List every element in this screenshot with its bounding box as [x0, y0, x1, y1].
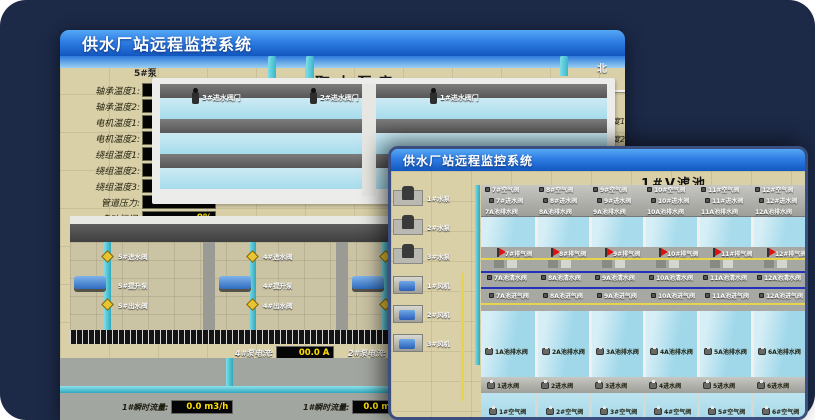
clean-water-valve-label: 9A池清水阀: [602, 273, 635, 282]
drain-valve-label: 9A池排水阀: [593, 207, 626, 216]
blower-fan-icon: [399, 310, 415, 320]
valve-icon: [595, 382, 603, 389]
filter-pool-cell: [751, 217, 805, 247]
alarm-flag-icon: [551, 248, 553, 257]
air-valve[interactable]: 3#空气阀: [600, 407, 637, 416]
instrument-box-icon[interactable]: [507, 260, 517, 268]
drain-valve[interactable]: 6A池排水阀: [758, 347, 801, 356]
clean-water-valve-label: 11A池清水阀: [710, 273, 747, 282]
panel-field-label: 电机温度1:: [66, 116, 140, 129]
valve-icon: [489, 198, 494, 203]
inlet-valve[interactable]: 3#进水阀门: [192, 92, 241, 104]
inlet-valve-label: 1#进水阀门: [440, 93, 479, 103]
inlet-valve-label: 3进水阀: [605, 381, 627, 390]
fan-shed: [393, 334, 423, 352]
air-valve[interactable]: 5#空气阀: [708, 407, 745, 416]
air-valve-label: 11#空气阀: [708, 185, 739, 194]
instrument-box-icon[interactable]: [723, 260, 733, 268]
valve-icon: [701, 187, 706, 192]
pump-bay: 4#进水阀 4#提升泵 4#出水阀: [203, 242, 336, 330]
bay-number: [203, 224, 336, 242]
inlet-valve-label: 7#进水阀: [496, 196, 523, 205]
water-pump-label: 2#水泵: [427, 222, 450, 232]
vent-valve[interactable]: 10#排气阀: [667, 249, 698, 258]
valve-icon: [654, 408, 662, 415]
channel-cell: 2#空气阀: [535, 393, 589, 417]
air-inlet-valve-label: 7A池进气阀: [496, 291, 529, 300]
inlet-valve[interactable]: 4进水阀: [649, 381, 681, 390]
pump2-current-label: 2#泵电流:: [348, 348, 386, 359]
clean-water-valve[interactable]: 10A池清水阀: [649, 273, 693, 282]
water-pump-label: 3#水泵: [427, 251, 450, 261]
inlet-valve[interactable]: 6进水阀: [757, 381, 789, 390]
air-inlet-valve[interactable]: 7A池进气阀: [489, 291, 529, 300]
walkway-cell: 8#排气阀 8A池清水阀 8A池进气阀: [535, 247, 589, 311]
inlet-valve[interactable]: 1进水阀: [487, 381, 519, 390]
panel-field-label: 管道压力:: [66, 196, 140, 209]
filter-pool-cell: [643, 217, 697, 247]
vent-valve-label: 10#排气阀: [667, 249, 698, 258]
filter-pool-cell: 2A池排水阀: [535, 311, 589, 377]
drain-valve[interactable]: 4A池排水阀: [650, 347, 693, 356]
water-pump-unit[interactable]: 3#水泵: [393, 241, 473, 270]
valve-icon: [757, 275, 762, 280]
walkway-cell: 11#排气阀 11A池清水阀 11A池进气阀: [697, 247, 751, 311]
valve-icon: [647, 187, 652, 192]
lift-pump-icon[interactable]: [74, 276, 106, 289]
air-valve-label: 2#空气阀: [556, 407, 583, 416]
air-valve-label: 3#空气阀: [610, 407, 637, 416]
channel-cell: 1#空气阀: [481, 393, 535, 417]
top-pool-row: [481, 217, 805, 247]
inlet-valve[interactable]: 9#进水阀: [597, 196, 631, 205]
inlet-valve[interactable]: 1#进水阀门: [430, 92, 479, 104]
inlet-valve[interactable]: 3进水阀: [595, 381, 627, 390]
inlet-valve-label: 2#进水阀门: [320, 93, 359, 103]
inlet-valve[interactable]: 7#进水阀: [489, 196, 523, 205]
valve-icon: [541, 275, 546, 280]
bay-inlet-valve-label: 5#进水阀: [118, 251, 147, 261]
air-valve-label: 12#空气阀: [762, 185, 793, 194]
valve-icon: [593, 187, 598, 192]
air-valve[interactable]: 12#空气阀: [755, 185, 793, 194]
top-wall-cell: 8#空气阀 8#进水阀 8A池排水阀: [535, 185, 589, 217]
air-valve[interactable]: 2#空气阀: [546, 407, 583, 416]
walkway-cell: 7#排气阀 7A池清水阀 7A池进气阀: [481, 247, 535, 311]
vent-valve-label: 11#排气阀: [721, 249, 752, 258]
alarm-flag-icon: [767, 248, 769, 257]
drain-valve-label: 5A池排水阀: [714, 347, 747, 356]
instrument-box-icon[interactable]: [561, 260, 571, 268]
left-riser-pipe: [475, 185, 480, 365]
pump-platform: [393, 219, 423, 235]
filter-pool-cell: 3A池排水阀: [589, 311, 643, 377]
filter-scene: 1#V滤池 1#水泵 2#水泵 3#水泵: [391, 171, 805, 417]
inlet-valve-label: 3#进水阀门: [202, 93, 241, 103]
valve-icon: [430, 92, 437, 104]
air-inlet-valve-label: 9A池进气阀: [604, 291, 637, 300]
clean-water-valve[interactable]: 11A池清水阀: [703, 273, 747, 282]
lift-pump-icon[interactable]: [219, 276, 251, 289]
channel-cell: 4#空气阀: [643, 393, 697, 417]
panel-field-label: 绕组温度2:: [66, 164, 140, 177]
clean-water-valve[interactable]: 7A池清水阀: [487, 273, 527, 282]
air-inlet-valve-label: 8A池进气阀: [550, 291, 583, 300]
pump4-current-label: 4#泵电流:: [235, 348, 273, 359]
bottom-wall-cell: 5进水阀: [697, 377, 751, 393]
valve-icon: [708, 408, 716, 415]
fan-list: 1#风机 2#风机 3#风机: [393, 270, 473, 357]
vent-valve[interactable]: 9#排气阀: [613, 249, 640, 258]
valve-icon: [489, 293, 494, 298]
filter-grid: 7#空气阀 7#进水阀 7A池排水阀 8#空气阀 8#进水阀 8A池排水阀 9#…: [481, 185, 805, 417]
top-wall-cell: 10#空气阀 10#进水阀 10A池排水阀: [643, 185, 697, 217]
bottom-wall-row: 1进水阀 2进水阀 3进水阀 4进水阀 5进水阀 6进水阀: [481, 377, 805, 393]
walkway-cell: 12#排气阀 12A池清水阀 12A池进气阀: [751, 247, 805, 311]
fan-shed: [393, 276, 423, 294]
valve-icon: [487, 275, 492, 280]
central-walkway: 7#排气阀 7A池清水阀 7A池进气阀 8#排气阀 8A池清水阀 8A池进气阀: [481, 247, 805, 311]
valve-icon: [543, 198, 548, 203]
clean-water-valve-label: 12A池清水阀: [764, 273, 801, 282]
vent-valve-label: 9#排气阀: [613, 249, 640, 258]
valve-icon: [543, 293, 548, 298]
inlet-valve[interactable]: 5进水阀: [703, 381, 735, 390]
air-inlet-valve-label: 12A池进气阀: [766, 291, 803, 300]
top-wall-cell: 9#空气阀 9#进水阀 9A池排水阀: [589, 185, 643, 217]
air-valve-label: 5#空气阀: [718, 407, 745, 416]
drain-valve[interactable]: 9A池排水阀: [593, 207, 626, 216]
valve-icon: [757, 382, 765, 389]
drain-valve-label: 1A池排水阀: [495, 347, 528, 356]
lift-pump-label: 5#提升泵: [118, 280, 147, 290]
valve-icon: [596, 348, 604, 355]
top-wall-cell: 12#空气阀 12#进水阀 12A池排水阀: [751, 185, 805, 217]
water-pump-icon: [402, 215, 414, 229]
air-inlet-valve[interactable]: 11A池进气阀: [705, 291, 749, 300]
clean-water-valve[interactable]: 12A池清水阀: [757, 273, 801, 282]
bottom-wall-cell: 4进水阀: [643, 377, 697, 393]
vent-valve[interactable]: 7#排气阀: [505, 249, 532, 258]
instrument-box-icon[interactable]: [669, 260, 679, 268]
air-valve[interactable]: 7#空气阀: [485, 185, 519, 194]
drain-valve-label: 8A池排水阀: [539, 207, 572, 216]
water-pump-label: 1#水泵: [427, 193, 450, 203]
drain-valve[interactable]: 1A池排水阀: [485, 347, 528, 356]
valve-icon: [649, 275, 654, 280]
lift-pump-label: 4#提升泵: [263, 280, 292, 290]
blower-fan-label: 3#风机: [427, 338, 450, 348]
air-valve-label: 6#空气阀: [772, 407, 799, 416]
water-pump-unit[interactable]: 1#水泵: [393, 183, 473, 212]
air-inlet-valve[interactable]: 10A池进气阀: [651, 291, 695, 300]
blower-fan-unit[interactable]: 2#风机: [393, 299, 473, 328]
inlet-valve-label: 1进水阀: [497, 381, 519, 390]
bay-number: [70, 224, 203, 242]
valve-icon: [649, 382, 657, 389]
panel-field-label: 轴承温度1:: [66, 84, 140, 97]
top-wall-cell: 11#空气阀 11#进水阀 11A池排水阀: [697, 185, 751, 217]
vent-valve-label: 12#排气阀: [775, 249, 805, 258]
valve-icon: [758, 348, 766, 355]
valve-icon: [539, 187, 544, 192]
air-valve[interactable]: 8#空气阀: [539, 185, 573, 194]
clean-water-valve-label: 7A池清水阀: [494, 273, 527, 282]
inlet-valve[interactable]: 10#进水阀: [651, 196, 689, 205]
inlet-valve-label: 5进水阀: [713, 381, 735, 390]
drain-valve[interactable]: 3A池排水阀: [596, 347, 639, 356]
drain-valve-label: 10A池排水阀: [647, 207, 684, 216]
air-inlet-valve[interactable]: 12A池进气阀: [759, 291, 803, 300]
top-wall-cell: 7#空气阀 7#进水阀 7A池排水阀: [481, 185, 535, 217]
inlet-valve[interactable]: 8#进水阀: [543, 196, 577, 205]
air-valve-label: 10#空气阀: [654, 185, 685, 194]
air-valve-label: 7#空气阀: [492, 185, 519, 194]
air-valve[interactable]: 6#空气阀: [762, 407, 799, 416]
filter-pool-cell: [481, 217, 535, 247]
drain-valve-label: 12A池排水阀: [755, 207, 792, 216]
desktop: 供水厂站远程监控系统 取水泵房 ✦ 北 西 南 东 轴承温度1 轴承温度2 5#…: [0, 0, 815, 420]
valve-icon: [704, 348, 712, 355]
valve-icon: [597, 198, 602, 203]
flow-readout-left: 1#瞬时流量: 0.0 m3/h: [122, 400, 233, 414]
instrument-box-icon[interactable]: [615, 260, 625, 268]
pump-list: 1#水泵 2#水泵 3#水泵: [393, 183, 473, 270]
clean-water-valve-label: 8A池清水阀: [548, 273, 581, 282]
panel-field-label: 电机温度2:: [66, 132, 140, 145]
inlet-valve-label: 12#进水阀: [766, 196, 797, 205]
air-valve[interactable]: 11#空气阀: [701, 185, 739, 194]
valve-icon: [651, 293, 656, 298]
valve-icon: [650, 348, 658, 355]
air-valve-label: 1#空气阀: [499, 407, 526, 416]
front-window-titlebar[interactable]: 供水厂站远程监控系统: [391, 149, 805, 171]
flow-left-value: 0.0 m3/h: [171, 400, 233, 414]
valve-icon: [600, 408, 608, 415]
pipe-stub: [560, 56, 568, 76]
drain-valve-label: 6A池排水阀: [768, 347, 801, 356]
inlet-valve-label: 10#进水阀: [658, 196, 689, 205]
air-inlet-valve[interactable]: 8A池进气阀: [543, 291, 583, 300]
inlet-valve[interactable]: 2进水阀: [541, 381, 573, 390]
valve-icon: [546, 408, 554, 415]
drain-valve-label: 7A池排水阀: [485, 207, 518, 216]
inlet-valve[interactable]: 12#进水阀: [759, 196, 797, 205]
panel-field-label: 绕组温度3:: [66, 180, 140, 193]
blower-fan-label: 2#风机: [427, 309, 450, 319]
valve-icon: [485, 187, 490, 192]
clean-water-valve-label: 10A池清水阀: [656, 273, 693, 282]
bottom-wall-cell: 6进水阀: [751, 377, 805, 393]
drain-valve-label: 3A池排水阀: [606, 347, 639, 356]
bay-outlet-valve-label: 5#出水阀: [118, 300, 147, 310]
air-valve-label: 8#空气阀: [546, 185, 573, 194]
pipe-stub: [268, 56, 276, 78]
vent-valve[interactable]: 11#排气阀: [721, 249, 752, 258]
valve-icon: [597, 293, 602, 298]
walkway-row: 7#排气阀 7A池清水阀 7A池进气阀 8#排气阀 8A池清水阀 8A池进气阀: [481, 247, 805, 311]
clean-water-valve[interactable]: 9A池清水阀: [595, 273, 635, 282]
vent-valve[interactable]: 12#排气阀: [775, 249, 805, 258]
inlet-valve-row: 3#进水阀门 2#进水阀门 1#进水阀门: [152, 92, 615, 106]
vent-valve-label: 7#排气阀: [505, 249, 532, 258]
filter-pool-cell: 6A池排水阀: [751, 311, 805, 377]
drain-valve[interactable]: 7A池排水阀: [485, 207, 518, 216]
bay-outlet-valve-label: 4#出水阀: [263, 300, 292, 310]
pipe-stub: [306, 56, 314, 78]
bottom-pool-row: 1A池排水阀 2A池排水阀 3A池排水阀 4A池排水阀 5A池排水阀 6A池排水…: [481, 311, 805, 377]
drain-valve-label: 2A池排水阀: [552, 347, 585, 356]
window-v-filter-pool: 供水厂站远程监控系统 1#V滤池 1#水泵 2#水泵 3#水泵: [388, 146, 808, 420]
air-valve[interactable]: 9#空气阀: [593, 185, 627, 194]
inlet-valve-label: 2进水阀: [551, 381, 573, 390]
water-pump-icon: [402, 244, 414, 258]
filter-pool-cell: 4A池排水阀: [643, 311, 697, 377]
alarm-flag-icon: [605, 248, 607, 257]
pump-platform: [393, 190, 423, 206]
drain-valve-label: 4A池排水阀: [660, 347, 693, 356]
valve-icon: [755, 187, 760, 192]
top-wall-row: 7#空气阀 7#进水阀 7A池排水阀 8#空气阀 8#进水阀 8A池排水阀 9#…: [481, 185, 805, 217]
valve-icon: [703, 275, 708, 280]
air-valve[interactable]: 4#空气阀: [654, 407, 691, 416]
back-window-titlebar[interactable]: 供水厂站远程监控系统: [60, 30, 625, 56]
vent-valve[interactable]: 8#排气阀: [559, 249, 586, 258]
valve-icon: [762, 408, 770, 415]
valve-icon: [705, 198, 710, 203]
pool-wall: [160, 119, 607, 133]
drain-valve[interactable]: 10A池排水阀: [647, 207, 684, 216]
filter-pool-cell: [535, 217, 589, 247]
valve-icon: [310, 92, 317, 104]
water-pump-unit[interactable]: 2#水泵: [393, 212, 473, 241]
inlet-valve[interactable]: 11#进水阀: [705, 196, 743, 205]
air-valve-label: 9#空气阀: [600, 185, 627, 194]
valve-icon: [192, 92, 199, 104]
flow-right-label: 1#瞬时流量:: [303, 402, 349, 413]
valve-icon: [542, 348, 550, 355]
valve-icon: [485, 348, 493, 355]
fan-shed: [393, 305, 423, 323]
drain-valve-label: 11A池排水阀: [701, 207, 738, 216]
outlet-stub: [226, 358, 233, 386]
front-window-title: 供水厂站远程监控系统: [403, 152, 533, 169]
valve-icon: [541, 382, 549, 389]
bottom-channel-row: 1#空气阀 2#空气阀 3#空气阀 4#空气阀 5#空气阀 6#空气阀: [481, 393, 805, 417]
valve-icon: [487, 382, 495, 389]
drain-valve[interactable]: 8A池排水阀: [539, 207, 572, 216]
channel-cell: 5#空气阀: [697, 393, 751, 417]
channel-cell: 3#空气阀: [589, 393, 643, 417]
inlet-valve-label: 9#进水阀: [604, 196, 631, 205]
water-pump-icon: [402, 186, 414, 200]
pump-platform: [393, 248, 423, 264]
filter-pool-cell: [697, 217, 751, 247]
valve-icon: [759, 198, 764, 203]
clean-water-valve[interactable]: 8A池清水阀: [541, 273, 581, 282]
alarm-flag-icon: [659, 248, 661, 257]
filter-pool-cell: 5A池排水阀: [697, 311, 751, 377]
drain-valve[interactable]: 11A池排水阀: [701, 207, 738, 216]
walkway-cell: 10#排气阀 10A池清水阀 10A池进气阀: [643, 247, 697, 311]
blower-fan-label: 1#风机: [427, 280, 450, 290]
valve-icon: [705, 293, 710, 298]
inlet-valve[interactable]: 2#进水阀门: [310, 92, 359, 104]
channel-cell: 6#空气阀: [751, 393, 805, 417]
walkway-cell: 9#排气阀 9A池清水阀 9A池进气阀: [589, 247, 643, 311]
bay-inlet-valve-label: 4#进水阀: [263, 251, 292, 261]
panel-field-label: 绕组温度1:: [66, 148, 140, 161]
bottom-wall-cell: 2进水阀: [535, 377, 589, 393]
blower-fan-unit[interactable]: 1#风机: [393, 270, 473, 299]
air-valve-label: 4#空气阀: [664, 407, 691, 416]
air-inlet-valve-label: 11A池进气阀: [712, 291, 749, 300]
flow-left-label: 1#瞬时流量:: [122, 402, 168, 413]
inlet-valve-label: 8#进水阀: [550, 196, 577, 205]
instrument-box-icon[interactable]: [777, 260, 787, 268]
drain-valve[interactable]: 12A池排水阀: [755, 207, 792, 216]
filter-pool-cell: [589, 217, 643, 247]
vent-valve-label: 8#排气阀: [559, 249, 586, 258]
bottom-wall-cell: 1进水阀: [481, 377, 535, 393]
air-valve[interactable]: 1#空气阀: [489, 407, 526, 416]
air-inlet-valve[interactable]: 9A池进气阀: [597, 291, 637, 300]
valve-icon: [595, 275, 600, 280]
valve-icon: [489, 408, 497, 415]
left-equipment-column: 1#水泵 2#水泵 3#水泵 1#风机 2#风机: [393, 183, 473, 357]
pump-bay: 5#进水阀 5#提升泵 5#出水阀: [70, 242, 203, 330]
blower-fan-icon: [399, 281, 415, 291]
valve-icon: [651, 198, 656, 203]
bottom-wall-cell: 3进水阀: [589, 377, 643, 393]
inlet-valve-label: 11#进水阀: [712, 196, 743, 205]
filter-pool-cell: 1A池排水阀: [481, 311, 535, 377]
air-inlet-valve-label: 10A池进气阀: [658, 291, 695, 300]
back-window-title: 供水厂站远程监控系统: [82, 31, 252, 55]
blower-fan-unit[interactable]: 3#风机: [393, 328, 473, 357]
alarm-flag-icon: [497, 248, 499, 257]
air-valve[interactable]: 10#空气阀: [647, 185, 685, 194]
inlet-valve-label: 4进水阀: [659, 381, 681, 390]
inlet-valve-label: 6进水阀: [767, 381, 789, 390]
lift-pump-icon[interactable]: [352, 276, 384, 289]
drain-valve[interactable]: 2A池排水阀: [542, 347, 585, 356]
blower-fan-icon: [399, 339, 415, 349]
valve-icon: [703, 382, 711, 389]
panel-field-label: 轴承温度2:: [66, 100, 140, 113]
compass-north-label: 北: [597, 60, 607, 75]
drain-valve[interactable]: 5A池排水阀: [704, 347, 747, 356]
alarm-flag-icon: [713, 248, 715, 257]
valve-icon: [759, 293, 764, 298]
